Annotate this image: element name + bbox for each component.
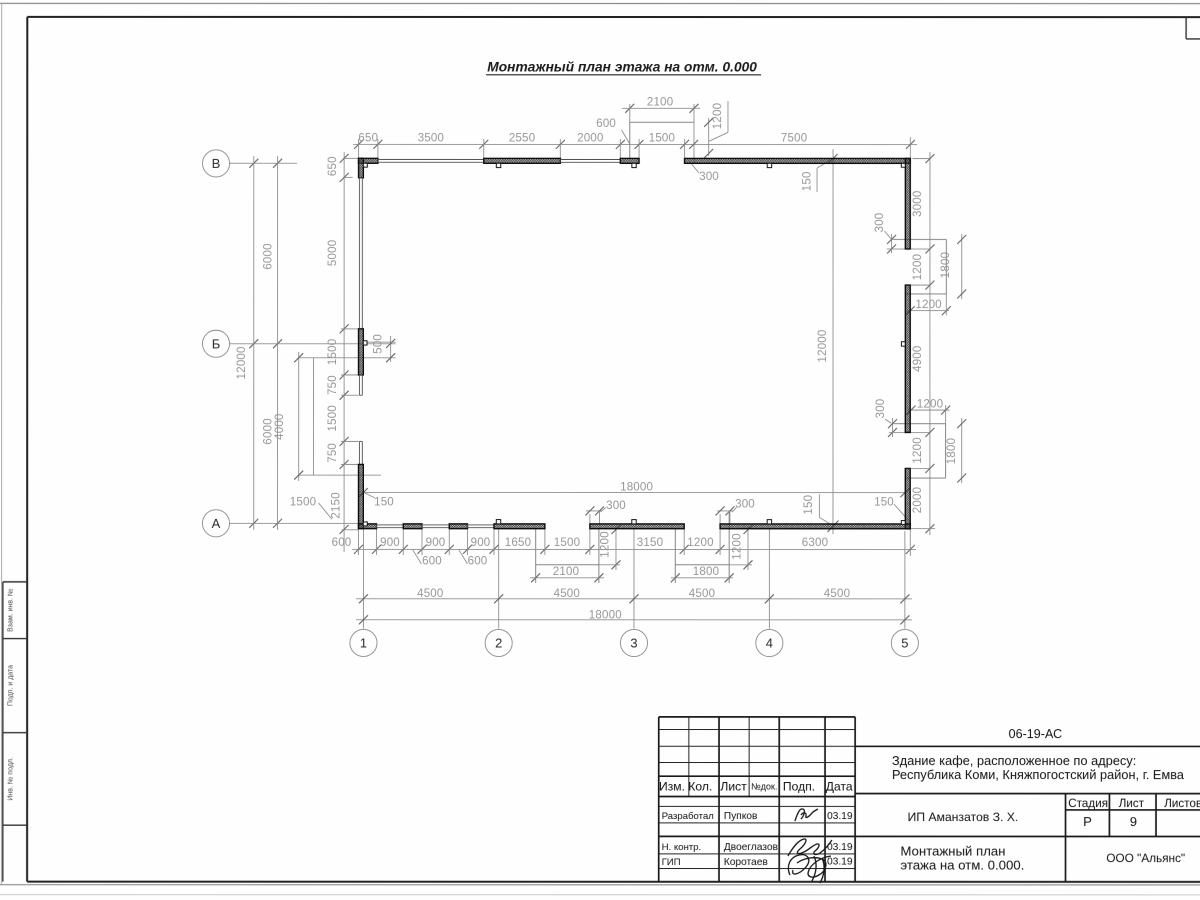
svg-text:500: 500: [372, 334, 385, 354]
svg-text:№док.: №док.: [751, 782, 777, 792]
svg-text:этажа на отм. 0.000.: этажа на отм. 0.000.: [900, 857, 1024, 872]
svg-text:900: 900: [380, 536, 400, 549]
svg-text:300: 300: [873, 213, 886, 233]
svg-text:Монтажный план: Монтажный план: [900, 843, 1005, 858]
svg-text:4900: 4900: [911, 346, 924, 372]
svg-text:Н. контр.: Н. контр.: [662, 842, 702, 853]
svg-text:2100: 2100: [553, 565, 579, 578]
svg-text:2000: 2000: [911, 487, 924, 513]
svg-text:1800: 1800: [693, 565, 719, 578]
svg-text:1200: 1200: [687, 536, 713, 549]
svg-text:7500: 7500: [781, 132, 807, 145]
svg-text:12000: 12000: [235, 346, 248, 379]
svg-text:4500: 4500: [689, 587, 715, 600]
svg-text:1200: 1200: [911, 254, 924, 280]
svg-text:В: В: [212, 156, 221, 171]
svg-text:6300: 6300: [802, 536, 828, 549]
svg-text:2550: 2550: [509, 132, 535, 145]
svg-text:900: 900: [426, 536, 446, 549]
svg-text:1200: 1200: [730, 533, 743, 559]
svg-text:А: А: [212, 516, 221, 531]
svg-text:Б: Б: [212, 336, 221, 351]
svg-text:150: 150: [374, 495, 394, 508]
svg-text:5: 5: [901, 636, 908, 651]
svg-text:650: 650: [358, 132, 378, 145]
svg-text:06-19-АС: 06-19-АС: [1009, 727, 1063, 741]
svg-text:Здание кафе, расположенное по: Здание кафе, расположенное по адресу:: [892, 753, 1136, 768]
svg-text:600: 600: [422, 554, 442, 567]
svg-text:4: 4: [766, 636, 773, 651]
svg-text:Пупков: Пупков: [724, 811, 758, 822]
svg-text:9: 9: [1130, 814, 1137, 829]
svg-text:03.19: 03.19: [827, 842, 853, 853]
svg-text:150: 150: [800, 171, 813, 191]
svg-text:18000: 18000: [589, 609, 622, 622]
svg-text:Лист: Лист: [720, 779, 747, 793]
svg-text:Подп. и дата: Подп. и дата: [7, 665, 14, 706]
svg-text:300: 300: [606, 499, 626, 512]
svg-text:1200: 1200: [917, 397, 943, 410]
svg-text:Подп.: Подп.: [783, 779, 815, 793]
svg-text:1500: 1500: [290, 495, 316, 508]
svg-text:18000: 18000: [620, 481, 653, 494]
svg-text:300: 300: [699, 170, 719, 183]
svg-text:1800: 1800: [945, 438, 958, 464]
svg-text:03.19: 03.19: [827, 811, 853, 822]
svg-text:1500: 1500: [554, 536, 580, 549]
svg-text:4500: 4500: [417, 587, 443, 600]
svg-text:12000: 12000: [816, 330, 829, 363]
svg-text:2100: 2100: [647, 96, 673, 109]
svg-text:150: 150: [874, 496, 894, 509]
svg-text:Лист: Лист: [1119, 797, 1145, 810]
svg-text:Двоеглазов: Двоеглазов: [724, 842, 778, 853]
svg-text:2000: 2000: [577, 132, 603, 145]
svg-text:4000: 4000: [273, 414, 286, 440]
svg-text:300: 300: [874, 399, 887, 419]
svg-text:Дата: Дата: [826, 779, 853, 793]
svg-text:900: 900: [471, 536, 491, 549]
svg-text:ИП Аманзатов З. Х.: ИП Аманзатов З. Х.: [908, 810, 1019, 824]
svg-text:750: 750: [326, 375, 339, 395]
svg-text:ГИП: ГИП: [662, 857, 681, 868]
svg-text:Р: Р: [1083, 814, 1092, 829]
svg-text:1500: 1500: [649, 132, 675, 145]
svg-text:6000: 6000: [262, 243, 275, 269]
svg-text:Коротаев: Коротаев: [724, 857, 768, 868]
svg-text:4500: 4500: [824, 587, 850, 600]
svg-text:1650: 1650: [505, 536, 531, 549]
svg-text:2: 2: [495, 636, 502, 651]
svg-text:600: 600: [332, 536, 352, 549]
svg-text:600: 600: [468, 554, 488, 567]
svg-text:1500: 1500: [326, 405, 339, 431]
svg-text:5000: 5000: [326, 240, 339, 266]
svg-text:Монтажный план этажа на отм. 0: Монтажный план этажа на отм. 0.000: [487, 59, 757, 74]
svg-text:Взам. инв. №: Взам. инв. №: [7, 588, 14, 631]
svg-text:1200: 1200: [915, 298, 941, 311]
svg-text:2150: 2150: [329, 492, 342, 518]
svg-text:Кол.: Кол.: [688, 779, 712, 793]
svg-text:Листов: Листов: [1164, 797, 1200, 810]
svg-text:300: 300: [735, 497, 755, 510]
svg-text:03.19: 03.19: [827, 857, 853, 868]
svg-text:1800: 1800: [939, 252, 952, 278]
svg-text:Разработал: Разработал: [662, 811, 714, 822]
svg-text:ООО "Альянс": ООО "Альянс": [1106, 851, 1185, 865]
svg-text:4500: 4500: [554, 587, 580, 600]
svg-text:750: 750: [326, 443, 339, 463]
svg-text:150: 150: [802, 495, 815, 515]
svg-text:3: 3: [630, 636, 637, 651]
svg-text:Республика Коми, Княжпогостски: Республика Коми, Княжпогостский район, г…: [892, 767, 1185, 782]
svg-text:3000: 3000: [911, 191, 924, 217]
svg-text:1200: 1200: [911, 437, 924, 463]
svg-text:3150: 3150: [637, 536, 663, 549]
svg-text:Инв. № подл.: Инв. № подл.: [7, 757, 14, 801]
svg-text:Изм.: Изм.: [659, 779, 685, 793]
svg-text:1: 1: [360, 636, 367, 651]
svg-text:1500: 1500: [326, 339, 339, 365]
svg-text:1200: 1200: [711, 103, 724, 129]
svg-text:Стадия: Стадия: [1068, 797, 1108, 810]
svg-text:600: 600: [596, 117, 616, 130]
svg-text:1200: 1200: [598, 531, 611, 557]
svg-text:650: 650: [326, 156, 339, 176]
svg-text:3500: 3500: [418, 132, 444, 145]
